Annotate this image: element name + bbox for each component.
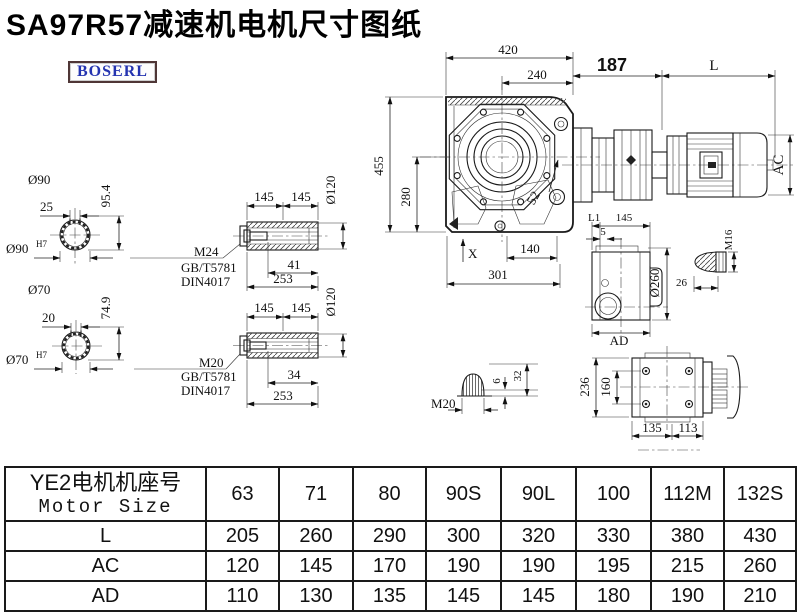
cell-AD-90L: 145 bbox=[501, 581, 576, 611]
dim-sleeveU-145b: 145 bbox=[291, 189, 311, 204]
dim-x-mark: X bbox=[468, 246, 478, 261]
row-label-AD: AD bbox=[5, 581, 206, 611]
label-sleeveL-std1: GB/T5781 bbox=[181, 369, 237, 384]
cell-AD-63: 110 bbox=[206, 581, 279, 611]
dim-sleeveL-145a: 145 bbox=[254, 300, 274, 315]
cell-AC-132S: 260 bbox=[724, 551, 796, 581]
motor-side-view bbox=[562, 128, 794, 202]
cell-L-80: 290 bbox=[353, 521, 426, 551]
col-header-100: 100 bbox=[576, 467, 651, 521]
shaft-section-90: Ø90 25 95.4 Ø90 H7 bbox=[6, 172, 124, 264]
table-row-AD: AD 110 130 135 145 145 180 190 210 bbox=[5, 581, 796, 611]
cell-AD-100: 180 bbox=[576, 581, 651, 611]
row-label-L: L bbox=[5, 521, 206, 551]
dim-sleeveL-dia120: Ø120 bbox=[323, 288, 338, 317]
dim-AC: AC bbox=[771, 155, 787, 176]
page-title: SA97R57减速机电机尺寸图纸 bbox=[6, 0, 422, 44]
table-row-L: L 205 260 290 300 320 330 380 430 bbox=[5, 521, 796, 551]
dim-455: 455 bbox=[371, 156, 386, 176]
header-motor-size-en: Motor Size bbox=[6, 495, 205, 519]
col-header-90S: 90S bbox=[426, 467, 501, 521]
dim-bore-90-fit: H7 bbox=[36, 239, 47, 249]
dim-sleeveU-dia120: Ø120 bbox=[323, 176, 338, 205]
dim-280: 280 bbox=[398, 187, 413, 207]
cell-AD-112M: 190 bbox=[651, 581, 724, 611]
dim-bolt-26: 26 bbox=[676, 277, 688, 289]
cell-AD-132S: 210 bbox=[724, 581, 796, 611]
dim-plug-6: 6 bbox=[491, 378, 503, 384]
row-label-AC: AC bbox=[5, 551, 206, 581]
plug-detail-m20: 6 32 M20 bbox=[431, 364, 538, 414]
cell-AC-112M: 215 bbox=[651, 551, 724, 581]
col-header-90L: 90L bbox=[501, 467, 576, 521]
motor-size-table: YE2电机机座号 Motor Size 63 71 80 90S 90L 100… bbox=[4, 466, 797, 612]
col-header-80: 80 bbox=[353, 467, 426, 521]
label-sleeveU-std1: GB/T5781 bbox=[181, 260, 237, 275]
cell-AC-100: 195 bbox=[576, 551, 651, 581]
dim-key-width-20: 20 bbox=[42, 310, 55, 325]
cell-L-63: 205 bbox=[206, 521, 279, 551]
dim-side-5: 5 bbox=[600, 226, 606, 238]
dim-74-9: 74.9 bbox=[98, 297, 113, 320]
cell-AC-63: 120 bbox=[206, 551, 279, 581]
dim-label-dia70: Ø70 bbox=[28, 282, 50, 297]
dim-187: 187 bbox=[597, 55, 627, 75]
dim-plug-32: 32 bbox=[512, 371, 524, 382]
dim-side-L1: L1 bbox=[588, 212, 600, 224]
dim-rear-113: 113 bbox=[678, 420, 697, 435]
cell-L-90L: 320 bbox=[501, 521, 576, 551]
dim-240: 240 bbox=[527, 67, 547, 82]
table-header-row: YE2电机机座号 Motor Size 63 71 80 90S 90L 100… bbox=[5, 467, 796, 521]
dim-rear-236: 236 bbox=[577, 377, 592, 397]
dim-bolt-M16: M16 bbox=[723, 229, 735, 250]
cell-L-90S: 300 bbox=[426, 521, 501, 551]
dim-301: 301 bbox=[488, 267, 508, 282]
col-header-132S: 132S bbox=[724, 467, 796, 521]
cell-AC-71: 145 bbox=[279, 551, 353, 581]
dim-95-4: 95.4 bbox=[98, 184, 113, 207]
dim-sleeveU-253: 253 bbox=[273, 271, 293, 286]
dim-side-145: 145 bbox=[616, 212, 633, 224]
dim-sleeveU-41: 41 bbox=[288, 257, 301, 272]
dim-sleeveL-34: 34 bbox=[288, 367, 302, 382]
gearbox-side-view: L1 145 5 Ø260 AD bbox=[585, 212, 671, 348]
cell-L-100: 330 bbox=[576, 521, 651, 551]
dim-420: 420 bbox=[498, 42, 518, 57]
cell-L-71: 260 bbox=[279, 521, 353, 551]
dim-52: 52 bbox=[523, 188, 542, 207]
dimension-drawing: Ø90 25 95.4 Ø90 H7 Ø70 20 74.9 Ø70 H7 bbox=[0, 40, 800, 464]
dim-side-dia260: Ø260 bbox=[647, 269, 662, 298]
dim-rear-160: 160 bbox=[598, 377, 613, 397]
sleeve-section-lower: 145 145 Ø120 M20 GB/T5781 DIN4017 34 253 bbox=[134, 288, 347, 408]
rear-flange-view: 236 160 135 113 bbox=[577, 346, 748, 450]
dim-L: L bbox=[709, 58, 718, 74]
dim-rear-135: 135 bbox=[642, 420, 662, 435]
dim-sleeveU-145a: 145 bbox=[254, 189, 274, 204]
cell-AC-90L: 190 bbox=[501, 551, 576, 581]
col-header-112M: 112M bbox=[651, 467, 724, 521]
gearbox-front-dims: 420 240 455 280 X 140 301 bbox=[371, 42, 573, 288]
page: { "title": "SA97R57减速机电机尺寸图纸", "brand": … bbox=[0, 0, 800, 613]
label-sleeveU-std2: DIN4017 bbox=[181, 274, 231, 289]
col-header-71: 71 bbox=[279, 467, 353, 521]
dim-bore-70: Ø70 bbox=[6, 352, 28, 367]
table-row-AC: AC 120 145 170 190 190 195 215 260 bbox=[5, 551, 796, 581]
dim-bore-70-fit: H7 bbox=[36, 350, 47, 360]
cell-AD-71: 130 bbox=[279, 581, 353, 611]
label-sleeveL-std2: DIN4017 bbox=[181, 383, 231, 398]
cell-AD-80: 135 bbox=[353, 581, 426, 611]
dim-side-AD: AD bbox=[610, 333, 629, 348]
header-motor-size: YE2电机机座号 Motor Size bbox=[5, 467, 206, 521]
dim-bore-90: Ø90 bbox=[6, 241, 28, 256]
dim-sleeveL-253: 253 bbox=[273, 388, 293, 403]
dim-140: 140 bbox=[520, 241, 540, 256]
dim-plug-M20: M20 bbox=[431, 396, 456, 411]
sleeve-section-upper: 145 145 Ø120 M24 GB/T5781 DIN4017 41 253 bbox=[130, 176, 347, 291]
cell-L-132S: 430 bbox=[724, 521, 796, 551]
dim-label-dia90: Ø90 bbox=[28, 172, 50, 187]
col-header-63: 63 bbox=[206, 467, 279, 521]
cell-L-112M: 380 bbox=[651, 521, 724, 551]
dim-key-width-25: 25 bbox=[40, 199, 53, 214]
shaft-section-70: Ø70 20 74.9 Ø70 H7 bbox=[6, 282, 124, 374]
header-motor-size-cn: YE2电机机座号 bbox=[6, 470, 205, 495]
dim-sleeveL-145b: 145 bbox=[291, 300, 311, 315]
label-sleeveL-thread: M20 bbox=[199, 355, 224, 370]
cell-AD-90S: 145 bbox=[426, 581, 501, 611]
bolt-detail-m16: M16 26 bbox=[676, 229, 738, 292]
cell-AC-90S: 190 bbox=[426, 551, 501, 581]
label-sleeveU-thread: M24 bbox=[194, 244, 219, 259]
cell-AC-80: 170 bbox=[353, 551, 426, 581]
